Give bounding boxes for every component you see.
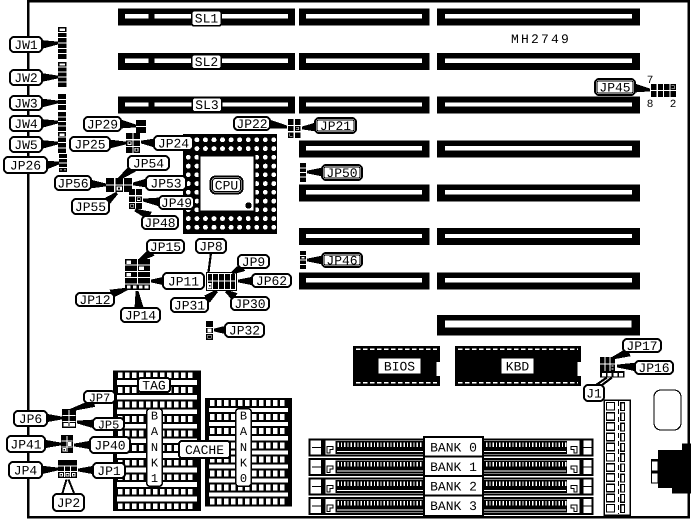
svg-text:JP53: JP53 [150, 176, 181, 191]
svg-text:JP24: JP24 [158, 136, 189, 151]
svg-text:BIOS: BIOS [384, 360, 415, 375]
svg-text:CACHE: CACHE [185, 443, 224, 458]
svg-text:CPU: CPU [215, 178, 238, 193]
svg-text:JP50: JP50 [326, 166, 357, 181]
svg-text:JP49: JP49 [161, 196, 192, 211]
svg-text:JP62: JP62 [256, 274, 287, 289]
svg-text:7: 7 [647, 75, 654, 87]
svg-text:SL3: SL3 [195, 98, 218, 113]
svg-text:BANK 3: BANK 3 [430, 499, 477, 514]
svg-text:1: 1 [151, 472, 158, 486]
svg-text:JW5: JW5 [14, 138, 37, 153]
svg-text:J1: J1 [586, 386, 602, 401]
svg-text:JP15: JP15 [150, 240, 181, 255]
svg-text:A: A [240, 425, 248, 439]
svg-text:2: 2 [670, 99, 677, 111]
svg-text:BANK 2: BANK 2 [430, 480, 477, 495]
svg-text:BANK 1: BANK 1 [430, 460, 477, 475]
svg-text:JP40: JP40 [94, 438, 125, 453]
svg-text:SL2: SL2 [195, 55, 218, 70]
svg-text:JP16: JP16 [638, 361, 669, 376]
svg-text:N: N [240, 441, 247, 455]
svg-text:JP22: JP22 [236, 117, 267, 132]
svg-text:JP31: JP31 [174, 298, 205, 313]
svg-text:K: K [151, 456, 159, 470]
svg-text:JP32: JP32 [229, 323, 260, 338]
svg-text:B: B [240, 410, 247, 424]
svg-text:JP17: JP17 [626, 339, 657, 354]
svg-text:8: 8 [647, 99, 654, 111]
svg-text:JW2: JW2 [14, 71, 37, 86]
svg-text:JP48: JP48 [144, 216, 175, 231]
svg-text:JP8: JP8 [199, 239, 222, 254]
svg-text:0: 0 [240, 472, 247, 486]
svg-text:JP21: JP21 [320, 119, 351, 134]
svg-text:B: B [151, 410, 158, 424]
svg-text:JP55: JP55 [75, 200, 106, 215]
svg-text:JW4: JW4 [14, 117, 38, 132]
svg-text:JP5: JP5 [98, 418, 120, 432]
svg-text:JW3: JW3 [14, 96, 37, 111]
svg-text:JP46: JP46 [326, 253, 357, 268]
svg-text:JP26: JP26 [10, 158, 41, 173]
svg-text:TAG: TAG [142, 378, 165, 393]
svg-text:JP9: JP9 [242, 255, 265, 270]
svg-text:JP4: JP4 [14, 463, 38, 478]
svg-text:JP25: JP25 [74, 137, 105, 152]
svg-text:JP30: JP30 [234, 297, 265, 312]
svg-text:KBD: KBD [506, 360, 530, 375]
svg-text:BANK 0: BANK 0 [430, 441, 477, 456]
svg-text:JP12: JP12 [79, 293, 110, 308]
svg-text:K: K [240, 456, 248, 470]
svg-text:JP56: JP56 [57, 176, 88, 191]
svg-text:JP6: JP6 [19, 412, 42, 427]
svg-text:JP2: JP2 [57, 496, 80, 511]
svg-text:JP1: JP1 [97, 464, 121, 479]
svg-text:SL1: SL1 [195, 12, 219, 27]
svg-text:JP54: JP54 [133, 156, 164, 171]
svg-text:MH2749: MH2749 [511, 32, 571, 47]
svg-text:JP41: JP41 [10, 437, 41, 452]
svg-text:JP14: JP14 [125, 308, 156, 323]
svg-text:N: N [151, 441, 158, 455]
svg-text:JP7: JP7 [89, 391, 111, 405]
svg-text:JW1: JW1 [14, 38, 38, 53]
svg-text:JP29: JP29 [87, 117, 118, 132]
svg-text:JP11: JP11 [168, 274, 199, 289]
svg-text:A: A [151, 425, 159, 439]
svg-text:JP45: JP45 [599, 80, 630, 95]
